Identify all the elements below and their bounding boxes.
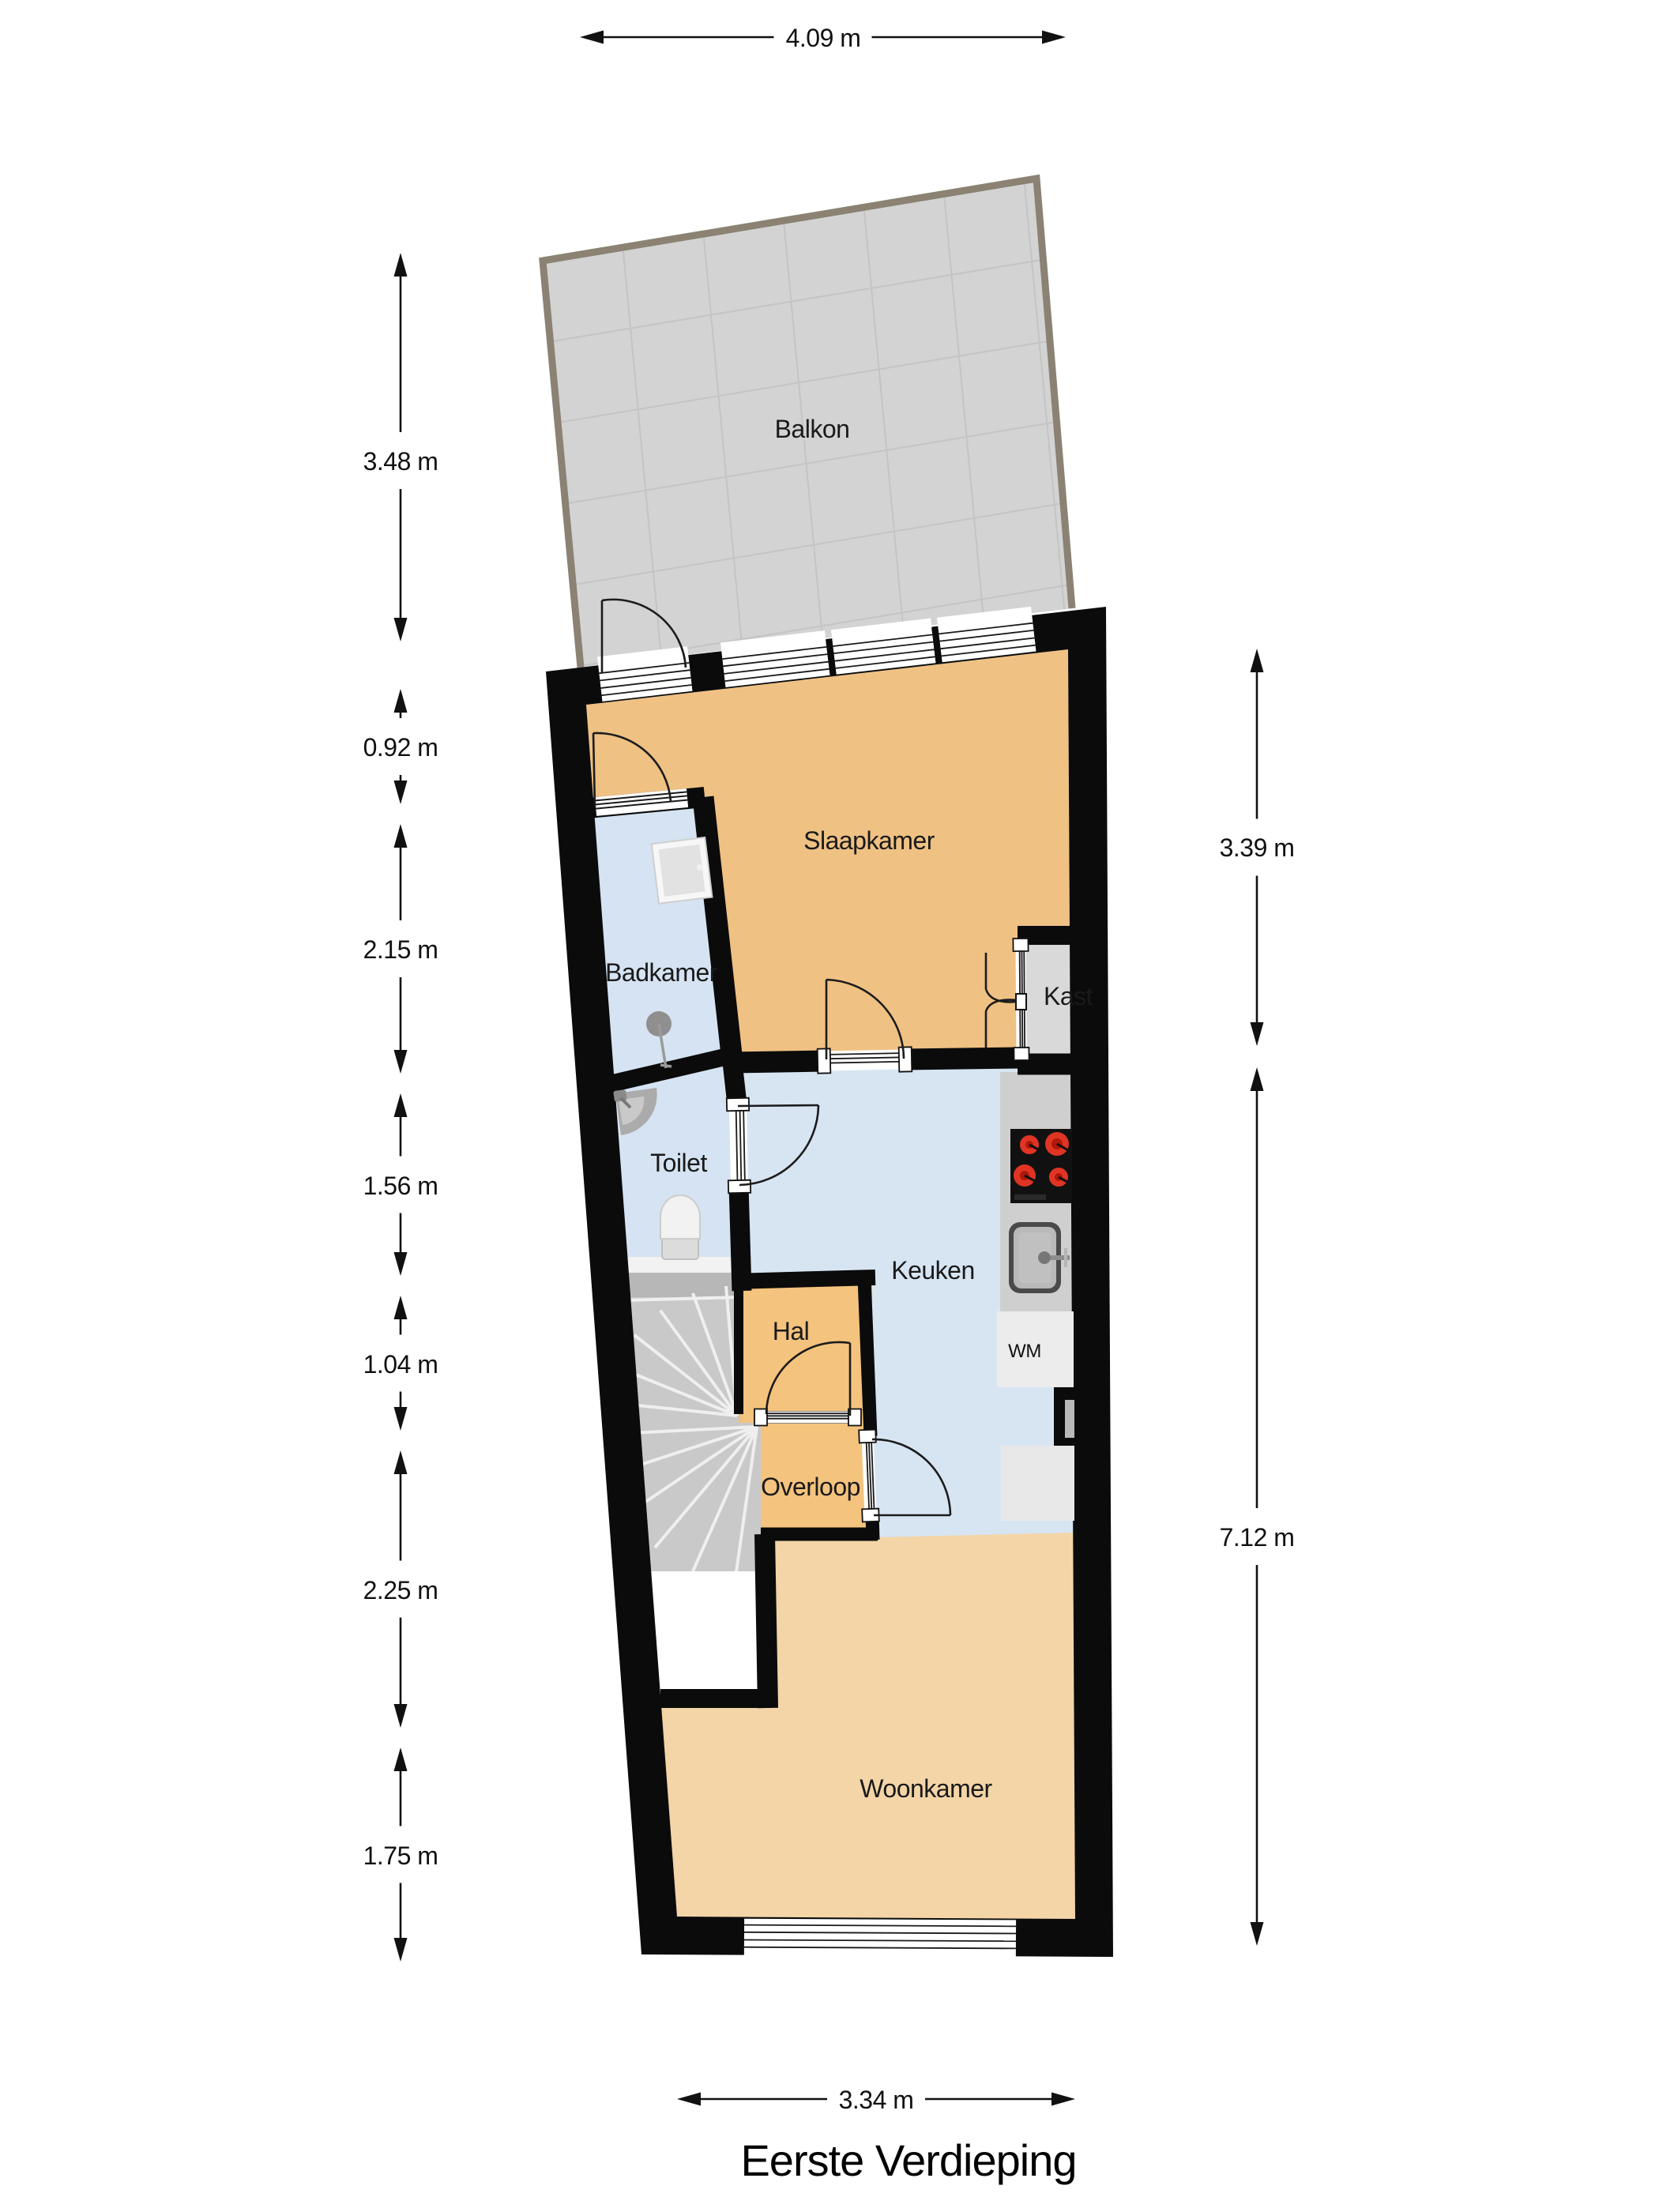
svg-text:WM: WM — [1008, 1341, 1041, 1362]
svg-text:2.25 m: 2.25 m — [363, 1576, 438, 1604]
svg-text:4.09 m: 4.09 m — [786, 24, 861, 52]
svg-text:1.04 m: 1.04 m — [363, 1350, 438, 1379]
svg-text:7.12 m: 7.12 m — [1220, 1523, 1295, 1552]
svg-text:3.48 m: 3.48 m — [363, 447, 438, 476]
svg-text:2.15 m: 2.15 m — [363, 935, 438, 964]
svg-text:Woonkamer: Woonkamer — [860, 1774, 992, 1803]
svg-text:1.75 m: 1.75 m — [363, 1841, 438, 1870]
svg-text:Kast: Kast — [1044, 982, 1093, 1010]
svg-text:3.39 m: 3.39 m — [1220, 833, 1295, 862]
svg-text:Hal: Hal — [773, 1317, 810, 1345]
svg-text:Eerste Verdieping: Eerste Verdieping — [740, 2135, 1076, 2185]
svg-text:1.56 m: 1.56 m — [363, 1172, 438, 1200]
svg-text:Keuken: Keuken — [891, 1256, 975, 1285]
svg-text:Balkon: Balkon — [775, 415, 850, 443]
svg-text:Slaapkamer: Slaapkamer — [803, 826, 935, 855]
svg-text:Toilet: Toilet — [650, 1149, 707, 1177]
svg-text:0.92 m: 0.92 m — [363, 733, 438, 762]
svg-text:Badkamer: Badkamer — [605, 958, 718, 987]
svg-text:3.34 m: 3.34 m — [839, 2086, 914, 2114]
svg-text:Overloop: Overloop — [761, 1473, 860, 1501]
